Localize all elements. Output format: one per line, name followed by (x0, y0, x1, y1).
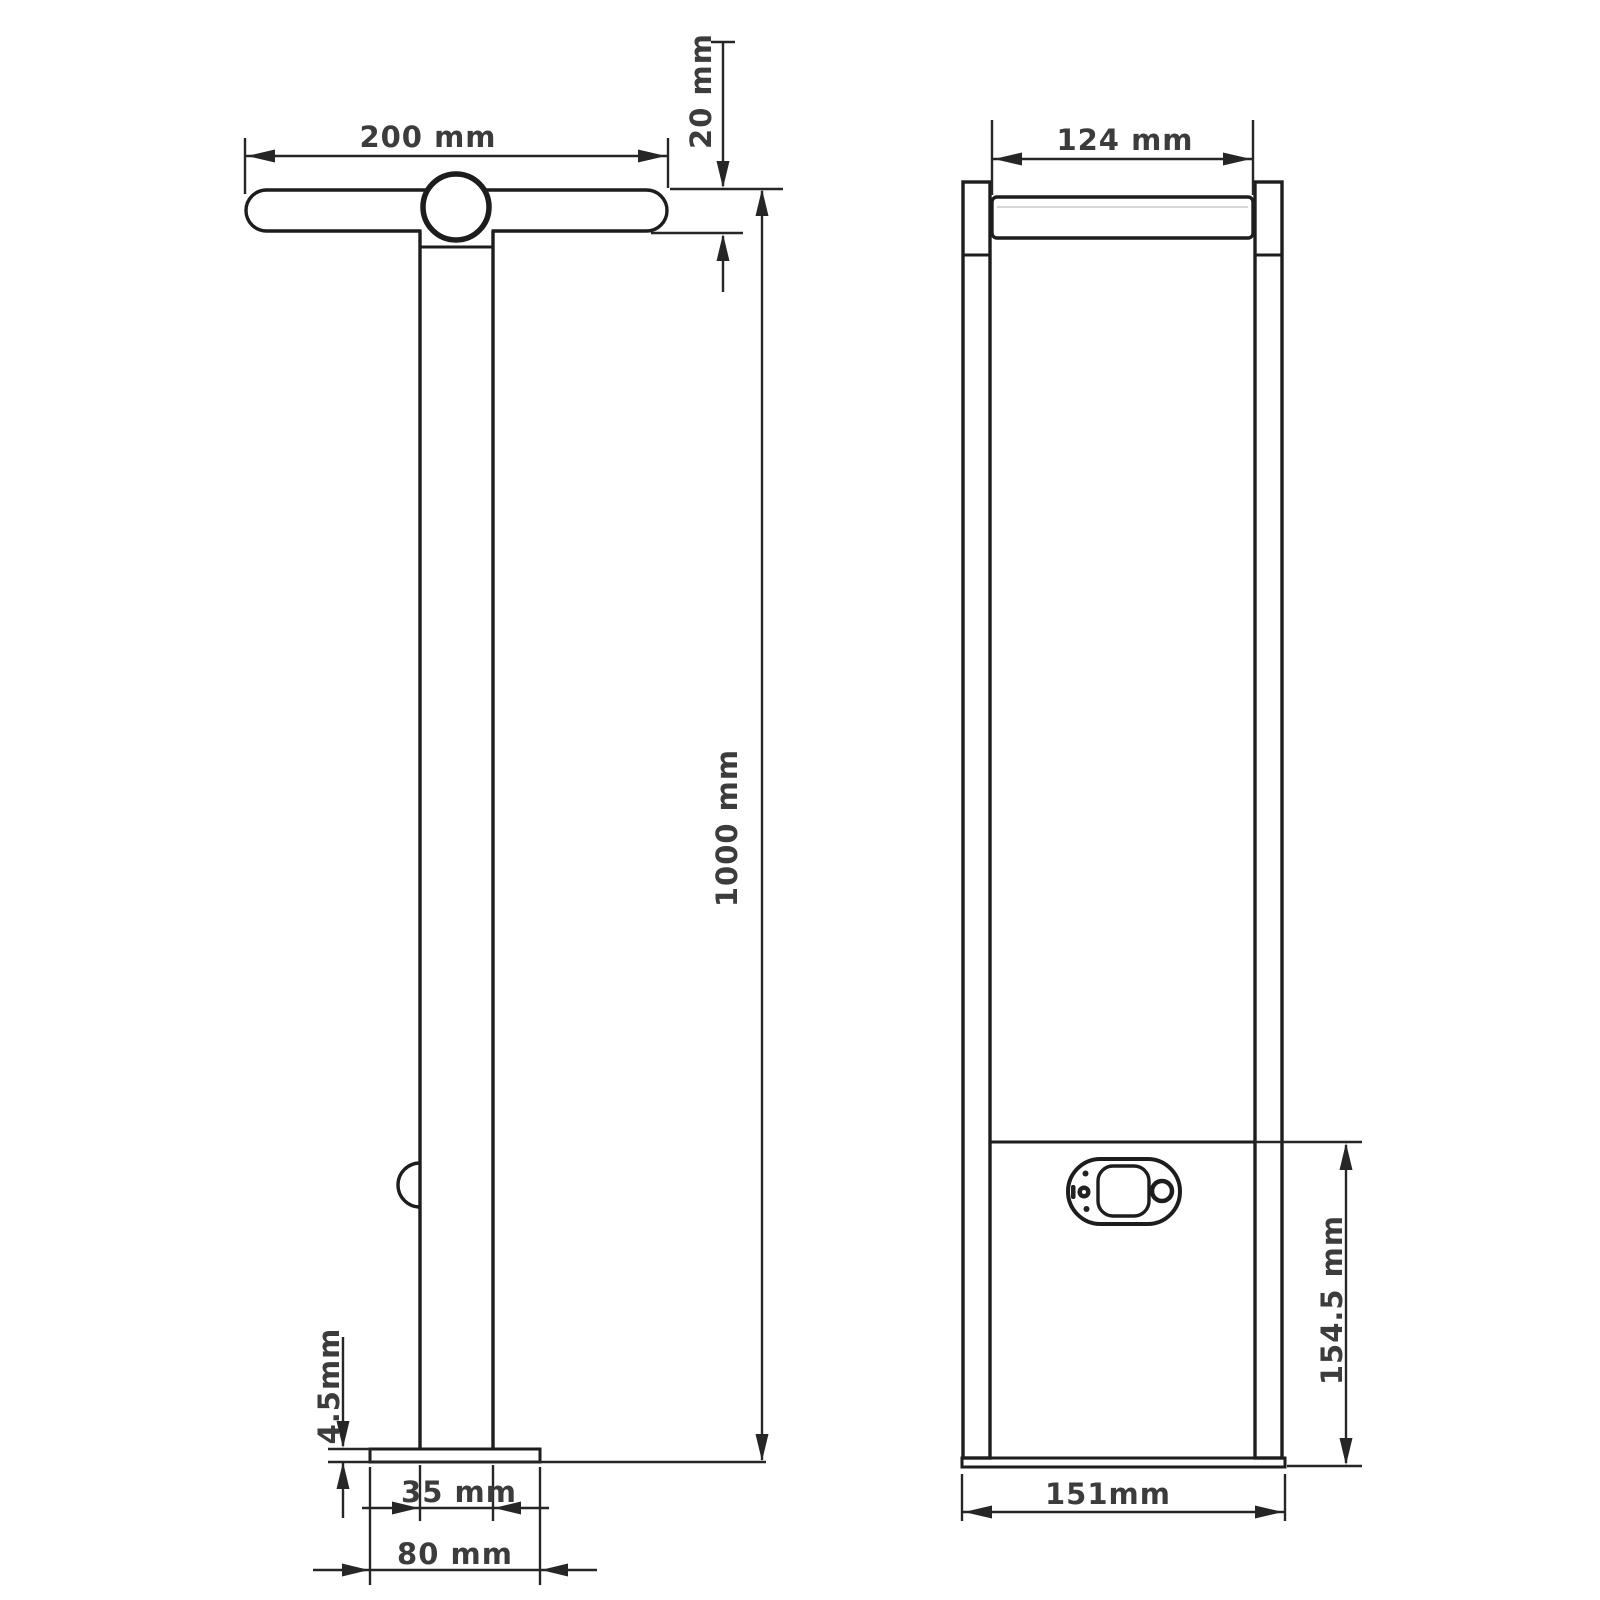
power-button (1152, 1181, 1172, 1201)
arrow-left-icon (247, 150, 275, 163)
arrow-up-icon (1340, 1143, 1353, 1170)
arrow-right-icon (342, 1564, 369, 1577)
arrow-up-icon (337, 1462, 350, 1489)
dimension-drawing: 200 mm 20 mm 1000 mm 4 (0, 0, 1600, 1600)
arrow-right-icon (1255, 1506, 1283, 1519)
base-width-label: 80 mm (397, 1537, 513, 1571)
dim-post-width: 35 mm (362, 1465, 549, 1521)
dim-head-width: 124 mm (992, 120, 1253, 195)
motion-sensor-bump (398, 1163, 420, 1207)
arrow-down-icon (756, 1434, 769, 1461)
dim-overall-width: 151mm (962, 1474, 1285, 1521)
head-width-label: 124 mm (1056, 123, 1193, 157)
front-view: 124 mm 154.5 mm 151mm (962, 120, 1362, 1521)
dim-lower-section-height: 154.5 mm (1255, 1142, 1362, 1466)
arrow-left-icon (964, 1506, 992, 1519)
arrow-down-icon (1340, 1438, 1353, 1465)
post-body (422, 229, 492, 1448)
base-thickness-label: 4.5mm (312, 1328, 346, 1445)
light-panel (992, 197, 1253, 238)
pivot-hub (423, 174, 489, 240)
arrow-left-icon (994, 153, 1022, 166)
base-plate-front (962, 1458, 1285, 1467)
post-width-label: 35 mm (401, 1475, 517, 1509)
dim-overall-height: 1000 mm (710, 189, 769, 1461)
head-thickness-label: 20 mm (684, 33, 718, 149)
arrow-up-icon (756, 189, 769, 216)
pir-sensor-window (1098, 1166, 1149, 1216)
arrow-up-icon (717, 234, 730, 261)
overall-width-label: 151mm (1045, 1477, 1171, 1511)
base-plate-side (370, 1449, 540, 1462)
arrow-left-icon (541, 1564, 568, 1577)
overall-height-label: 1000 mm (710, 749, 744, 907)
right-side-arm (1255, 182, 1282, 1458)
arrow-down-icon (717, 161, 730, 188)
left-side-arm (963, 182, 990, 1458)
arrow-right-icon (1223, 153, 1251, 166)
lower-section-height-label: 154.5 mm (1315, 1215, 1349, 1385)
head-length-label: 200 mm (359, 120, 496, 154)
side-view: 200 mm 20 mm 1000 mm 4 (245, 33, 783, 1585)
ir-led-icon (1071, 1171, 1091, 1213)
arrow-right-icon (638, 150, 666, 163)
technical-drawing-page: 200 mm 20 mm 1000 mm 4 (0, 0, 1600, 1600)
